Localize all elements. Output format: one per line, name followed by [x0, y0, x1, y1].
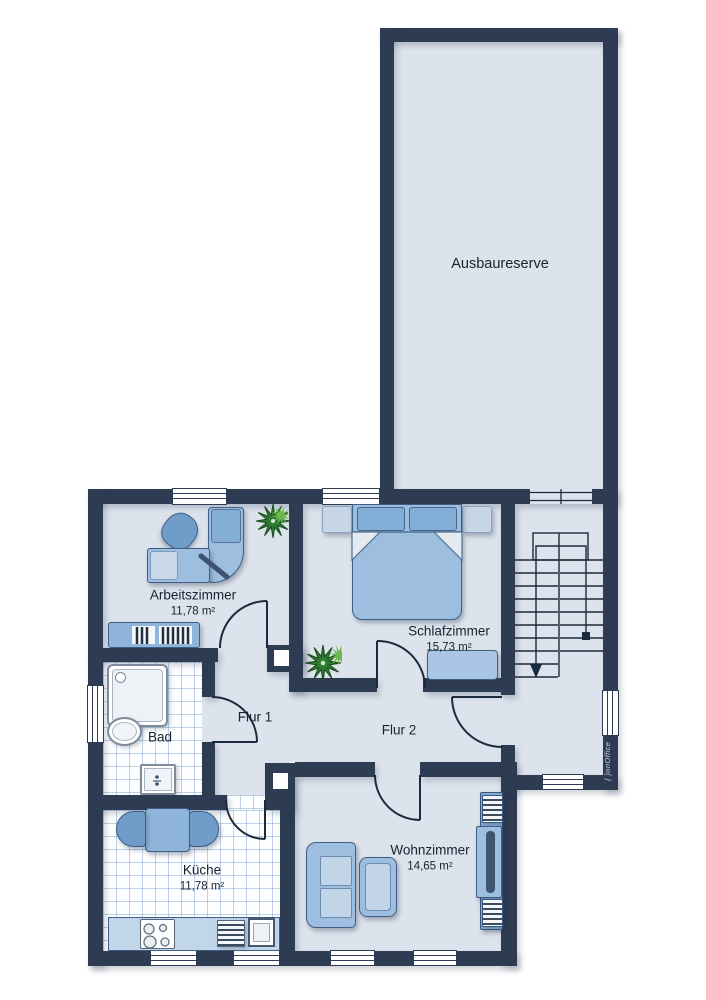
wall-bad-right-bottom	[202, 742, 215, 797]
wall-ausbau-left	[380, 28, 394, 490]
pillow-right	[409, 507, 457, 531]
kitchen-table	[145, 808, 190, 852]
window-kueche-1	[150, 950, 197, 966]
wall-stub-stair-door	[501, 745, 515, 790]
wall-wohn-top-right	[420, 762, 502, 777]
nightstand-left	[322, 506, 352, 533]
room-label-schlafzimmer: Schlafzimmer 15,73 m²	[408, 623, 490, 654]
wall-ausbau-top	[380, 28, 618, 42]
wall-wohn-top-left	[295, 762, 375, 777]
window-bad	[87, 685, 104, 743]
watermark-onoffice: { }onOffice	[603, 733, 618, 790]
room-name: Küche	[180, 862, 225, 879]
kitchen-chair-left	[116, 811, 146, 847]
desk-dark-panel	[211, 509, 241, 543]
door-gap-stairhall	[501, 695, 515, 745]
wall-ausbau-right	[603, 28, 618, 490]
wall-sz-right	[501, 504, 515, 695]
sofa-cushion-bottom	[320, 888, 352, 918]
plant-icon-schlafzimmer	[304, 644, 342, 682]
stove	[140, 919, 175, 949]
room-area: 11,78 m²	[150, 604, 236, 618]
window-stairhall-bottom	[542, 774, 584, 790]
dish-rack	[217, 920, 245, 947]
threshold-ausbaureserve	[530, 489, 592, 504]
room-label-flur2: Flur 2	[382, 723, 417, 740]
toilet-bowl	[112, 722, 137, 741]
wall-bad-right-top	[202, 662, 215, 697]
window-schlafzimmer	[322, 488, 380, 505]
tv-screen	[486, 831, 495, 893]
window-kueche-2	[233, 950, 280, 966]
radiator-slots-backing-2	[159, 626, 192, 644]
window-wohnzimmer-2	[413, 950, 457, 966]
bathroom-sink-basin	[144, 768, 172, 791]
room-name: Arbeitszimmer	[150, 587, 236, 604]
room-name: Flur 2	[382, 723, 417, 740]
plant-icon-arbeitszimmer	[255, 503, 291, 539]
room-name: Wohnzimmer	[390, 842, 469, 859]
room-area: 14,65 m²	[390, 859, 469, 873]
room-name: Schlafzimmer	[408, 623, 490, 640]
room-label-kueche: Küche 11,78 m²	[180, 862, 225, 893]
kitchen-sink-basin	[253, 923, 270, 942]
room-label-ausbaureserve: Ausbaureserve	[451, 255, 549, 273]
chimney-shaft-upper	[274, 650, 289, 666]
sofa-cushion-top	[320, 856, 352, 886]
room-area: 11,78 m²	[180, 879, 225, 893]
wall-az-bottom-left	[88, 648, 218, 662]
floor-plan-canvas: Ausbaureserve Arbeitszimmer 11,78 m² Sch…	[0, 0, 706, 1000]
room-name: Flur 1	[238, 710, 273, 727]
speaker-bottom	[482, 899, 503, 927]
window-wohnzimmer-1	[330, 950, 375, 966]
door-gap-kueche	[227, 795, 265, 810]
room-label-flur1: Flur 1	[238, 710, 273, 727]
wall-sz-bottom-right	[423, 678, 501, 692]
shower-drain	[115, 672, 126, 683]
room-label-arbeitszimmer: Arbeitszimmer 11,78 m²	[150, 587, 236, 618]
pillow-left	[357, 507, 405, 531]
desk-light-panel	[150, 551, 178, 580]
watermark-brand: onOffice	[603, 742, 612, 773]
door-gap-bad	[202, 697, 215, 742]
door-gap-wohnzimmer	[375, 762, 420, 777]
door-gap-arbeitszimmer	[218, 648, 267, 662]
window-stairhall-right	[602, 690, 619, 736]
window-arbeitszimmer	[172, 488, 227, 505]
armchair-seat	[365, 863, 391, 911]
nightstand-right	[462, 506, 492, 533]
watermark-symbol: { }	[603, 773, 612, 781]
room-label-bad: Bad	[148, 730, 172, 747]
stair-hall-floor	[515, 504, 603, 775]
door-gap-schlafzimmer	[377, 678, 423, 692]
chimney-shaft-lower	[273, 773, 288, 789]
room-label-wohnzimmer: Wohnzimmer 14,65 m²	[390, 842, 469, 873]
room-name: Bad	[148, 730, 172, 747]
room-name: Ausbaureserve	[451, 255, 549, 273]
radiator-slots-backing-1	[132, 626, 155, 644]
wall-wohnzimmer-right	[501, 762, 517, 966]
speaker-top	[482, 795, 503, 823]
room-area: 15,73 m²	[408, 640, 490, 654]
